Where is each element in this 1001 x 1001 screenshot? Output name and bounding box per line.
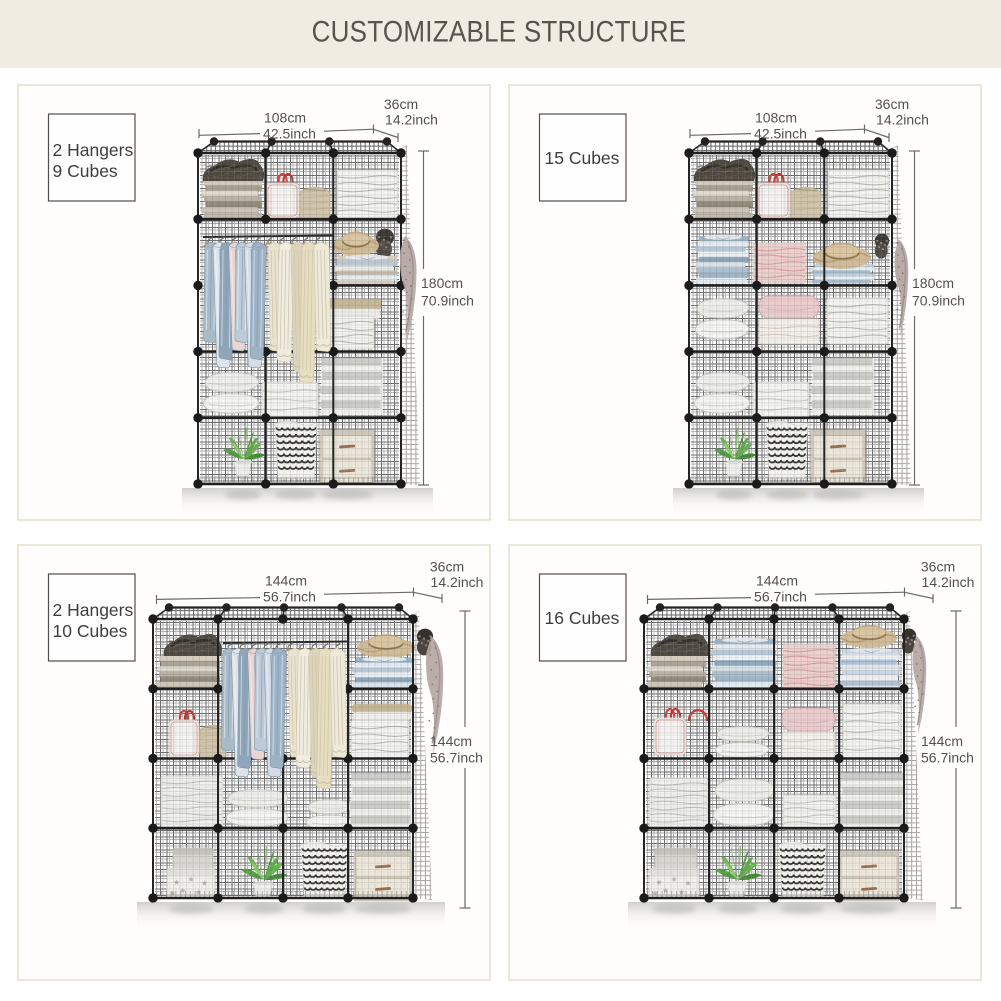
svg-text:56.7inch: 56.7inch bbox=[921, 750, 974, 766]
svg-text:108cm: 108cm bbox=[264, 110, 306, 126]
svg-text:56.7inch: 56.7inch bbox=[754, 589, 807, 605]
svg-text:42.5inch: 42.5inch bbox=[263, 126, 316, 142]
svg-text:10 Cubes: 10 Cubes bbox=[53, 621, 128, 641]
svg-text:180cm: 180cm bbox=[421, 275, 463, 291]
svg-text:180cm: 180cm bbox=[912, 275, 954, 291]
svg-text:36cm: 36cm bbox=[430, 559, 464, 575]
svg-text:CUSTOMIZABLE STRUCTURE: CUSTOMIZABLE STRUCTURE bbox=[312, 15, 687, 48]
svg-text:70.9inch: 70.9inch bbox=[421, 293, 474, 309]
svg-text:144cm: 144cm bbox=[756, 573, 798, 589]
svg-text:14.2inch: 14.2inch bbox=[922, 574, 975, 590]
svg-text:16 Cubes: 16 Cubes bbox=[545, 608, 620, 628]
svg-text:42.5inch: 42.5inch bbox=[754, 126, 807, 142]
svg-text:56.7inch: 56.7inch bbox=[430, 750, 483, 766]
svg-text:144cm: 144cm bbox=[265, 573, 307, 589]
svg-text:15 Cubes: 15 Cubes bbox=[545, 148, 620, 168]
svg-text:36cm: 36cm bbox=[384, 96, 418, 112]
svg-text:56.7inch: 56.7inch bbox=[263, 589, 316, 605]
svg-text:144cm: 144cm bbox=[921, 733, 963, 749]
svg-text:36cm: 36cm bbox=[875, 96, 909, 112]
svg-text:70.9inch: 70.9inch bbox=[912, 293, 965, 309]
svg-text:14.2inch: 14.2inch bbox=[385, 112, 438, 128]
svg-text:14.2inch: 14.2inch bbox=[431, 574, 484, 590]
svg-text:14.2inch: 14.2inch bbox=[876, 112, 929, 128]
svg-text:2 Hangers: 2 Hangers bbox=[53, 600, 134, 620]
svg-text:2 Hangers: 2 Hangers bbox=[53, 140, 134, 160]
svg-text:36cm: 36cm bbox=[921, 559, 955, 575]
svg-text:144cm: 144cm bbox=[430, 733, 472, 749]
svg-text:108cm: 108cm bbox=[755, 110, 797, 126]
svg-text:9 Cubes: 9 Cubes bbox=[53, 161, 118, 181]
